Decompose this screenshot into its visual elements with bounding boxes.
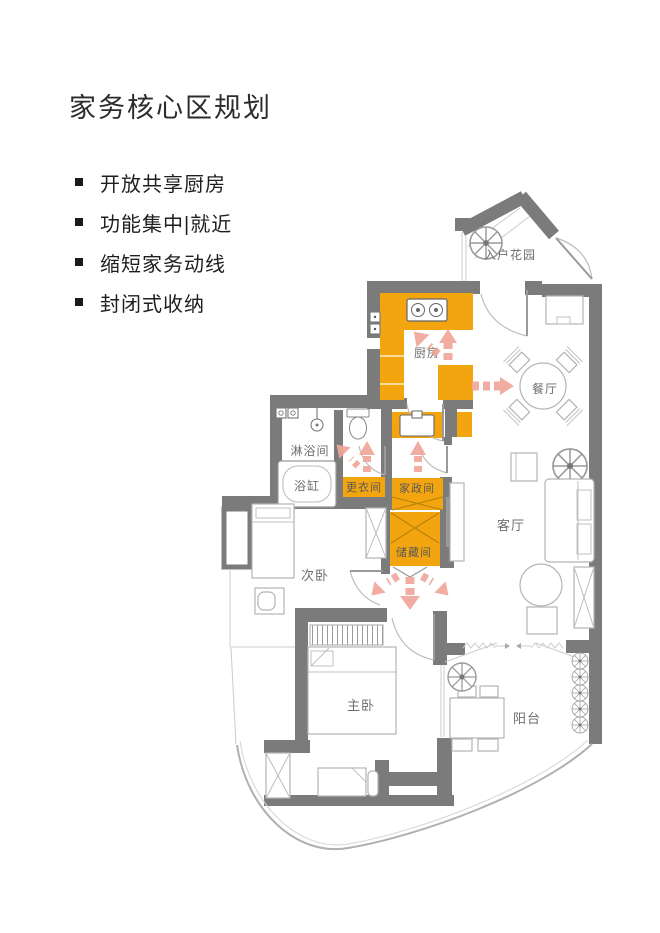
- room-label-balcony: 阳台: [513, 711, 541, 726]
- balcony-chair-icon: [452, 739, 472, 751]
- flow-arrows: [331, 325, 514, 610]
- housekeeping-door-arc: [419, 446, 447, 473]
- storage-double-door: [393, 567, 427, 577]
- bed-icon: [252, 504, 294, 578]
- arrow-head: [500, 377, 514, 395]
- inner-door-arc: [481, 294, 527, 336]
- side-chair-icon: [511, 453, 537, 481]
- room-label-dining: 餐厅: [532, 381, 558, 396]
- plant-icon: [572, 717, 588, 733]
- plant-icon: [572, 685, 588, 701]
- living-room: 客厅: [446, 479, 594, 634]
- floorplan: 入户花园 厨房: [0, 0, 660, 933]
- room-label-living: 客厅: [497, 518, 525, 533]
- coffee-table-icon: [520, 564, 562, 606]
- room-label-bedroom2: 次卧: [301, 568, 329, 583]
- bedroom-master: 主卧: [266, 614, 434, 798]
- shower-icon: [311, 408, 323, 431]
- chair-icon: [258, 592, 275, 610]
- balcony: 阳台: [448, 653, 588, 751]
- room-label-bathtub: 浴缸: [294, 478, 320, 493]
- balcony-table-icon: [450, 698, 504, 738]
- page: 家务核心区规划 开放共享厨房 功能集中|就近 缩短家务动线 封闭式收纳: [0, 0, 660, 933]
- tv-icon: [446, 497, 450, 547]
- arrow-dressing-upleft: [351, 459, 358, 466]
- entry-door-leaf: [556, 238, 592, 279]
- dresser-icon: [318, 768, 366, 796]
- plant-icon: [572, 669, 588, 685]
- dining-room: 餐厅: [503, 346, 587, 483]
- room-label-shower: 淋浴间: [290, 444, 329, 458]
- room-label-housekeeping: 家政间: [399, 481, 435, 495]
- room-label-dressing: 更衣间: [346, 480, 382, 494]
- basin-icon: [288, 408, 298, 418]
- closet-rail-icon: [310, 625, 383, 645]
- plant-icon: [553, 449, 587, 483]
- room-label-storage: 储藏间: [396, 545, 432, 559]
- cabinet-icon: [574, 567, 594, 628]
- balcony-chair-icon: [480, 686, 498, 697]
- stool-icon: [368, 771, 378, 796]
- shoe-cabinet: [546, 296, 583, 324]
- arrow-head: [366, 581, 386, 601]
- arrow-head: [400, 596, 420, 610]
- bay-window: [224, 509, 250, 567]
- bed-icon: [308, 647, 396, 734]
- plant-icon: [448, 663, 476, 691]
- plant-icon: [572, 701, 588, 717]
- basin-icon: [276, 408, 286, 418]
- bedroom-second: 次卧: [252, 504, 386, 614]
- wardrobe-icon: [366, 508, 386, 558]
- arrow-head: [359, 441, 375, 455]
- balcony-chair-icon: [478, 739, 498, 751]
- sofa-icon: [545, 479, 594, 562]
- arrow-head: [439, 329, 457, 343]
- washing-machine-icon: [400, 411, 434, 436]
- room-label-entry-garden: 入户花园: [484, 247, 536, 262]
- toilet-icon: [347, 409, 369, 439]
- arrow-head: [410, 441, 426, 455]
- arrow-head: [434, 581, 454, 601]
- tv-cabinet-icon: [450, 483, 464, 561]
- stove-icon: [407, 299, 447, 321]
- room-label-master: 主卧: [347, 698, 375, 713]
- arrow-storage-downleft: [388, 576, 398, 582]
- plant-icon: [572, 653, 588, 669]
- stool-icon: [527, 607, 557, 634]
- wardrobe-icon: [266, 753, 290, 798]
- arrow-storage-downright: [422, 576, 432, 582]
- master-door-arc: [392, 618, 434, 660]
